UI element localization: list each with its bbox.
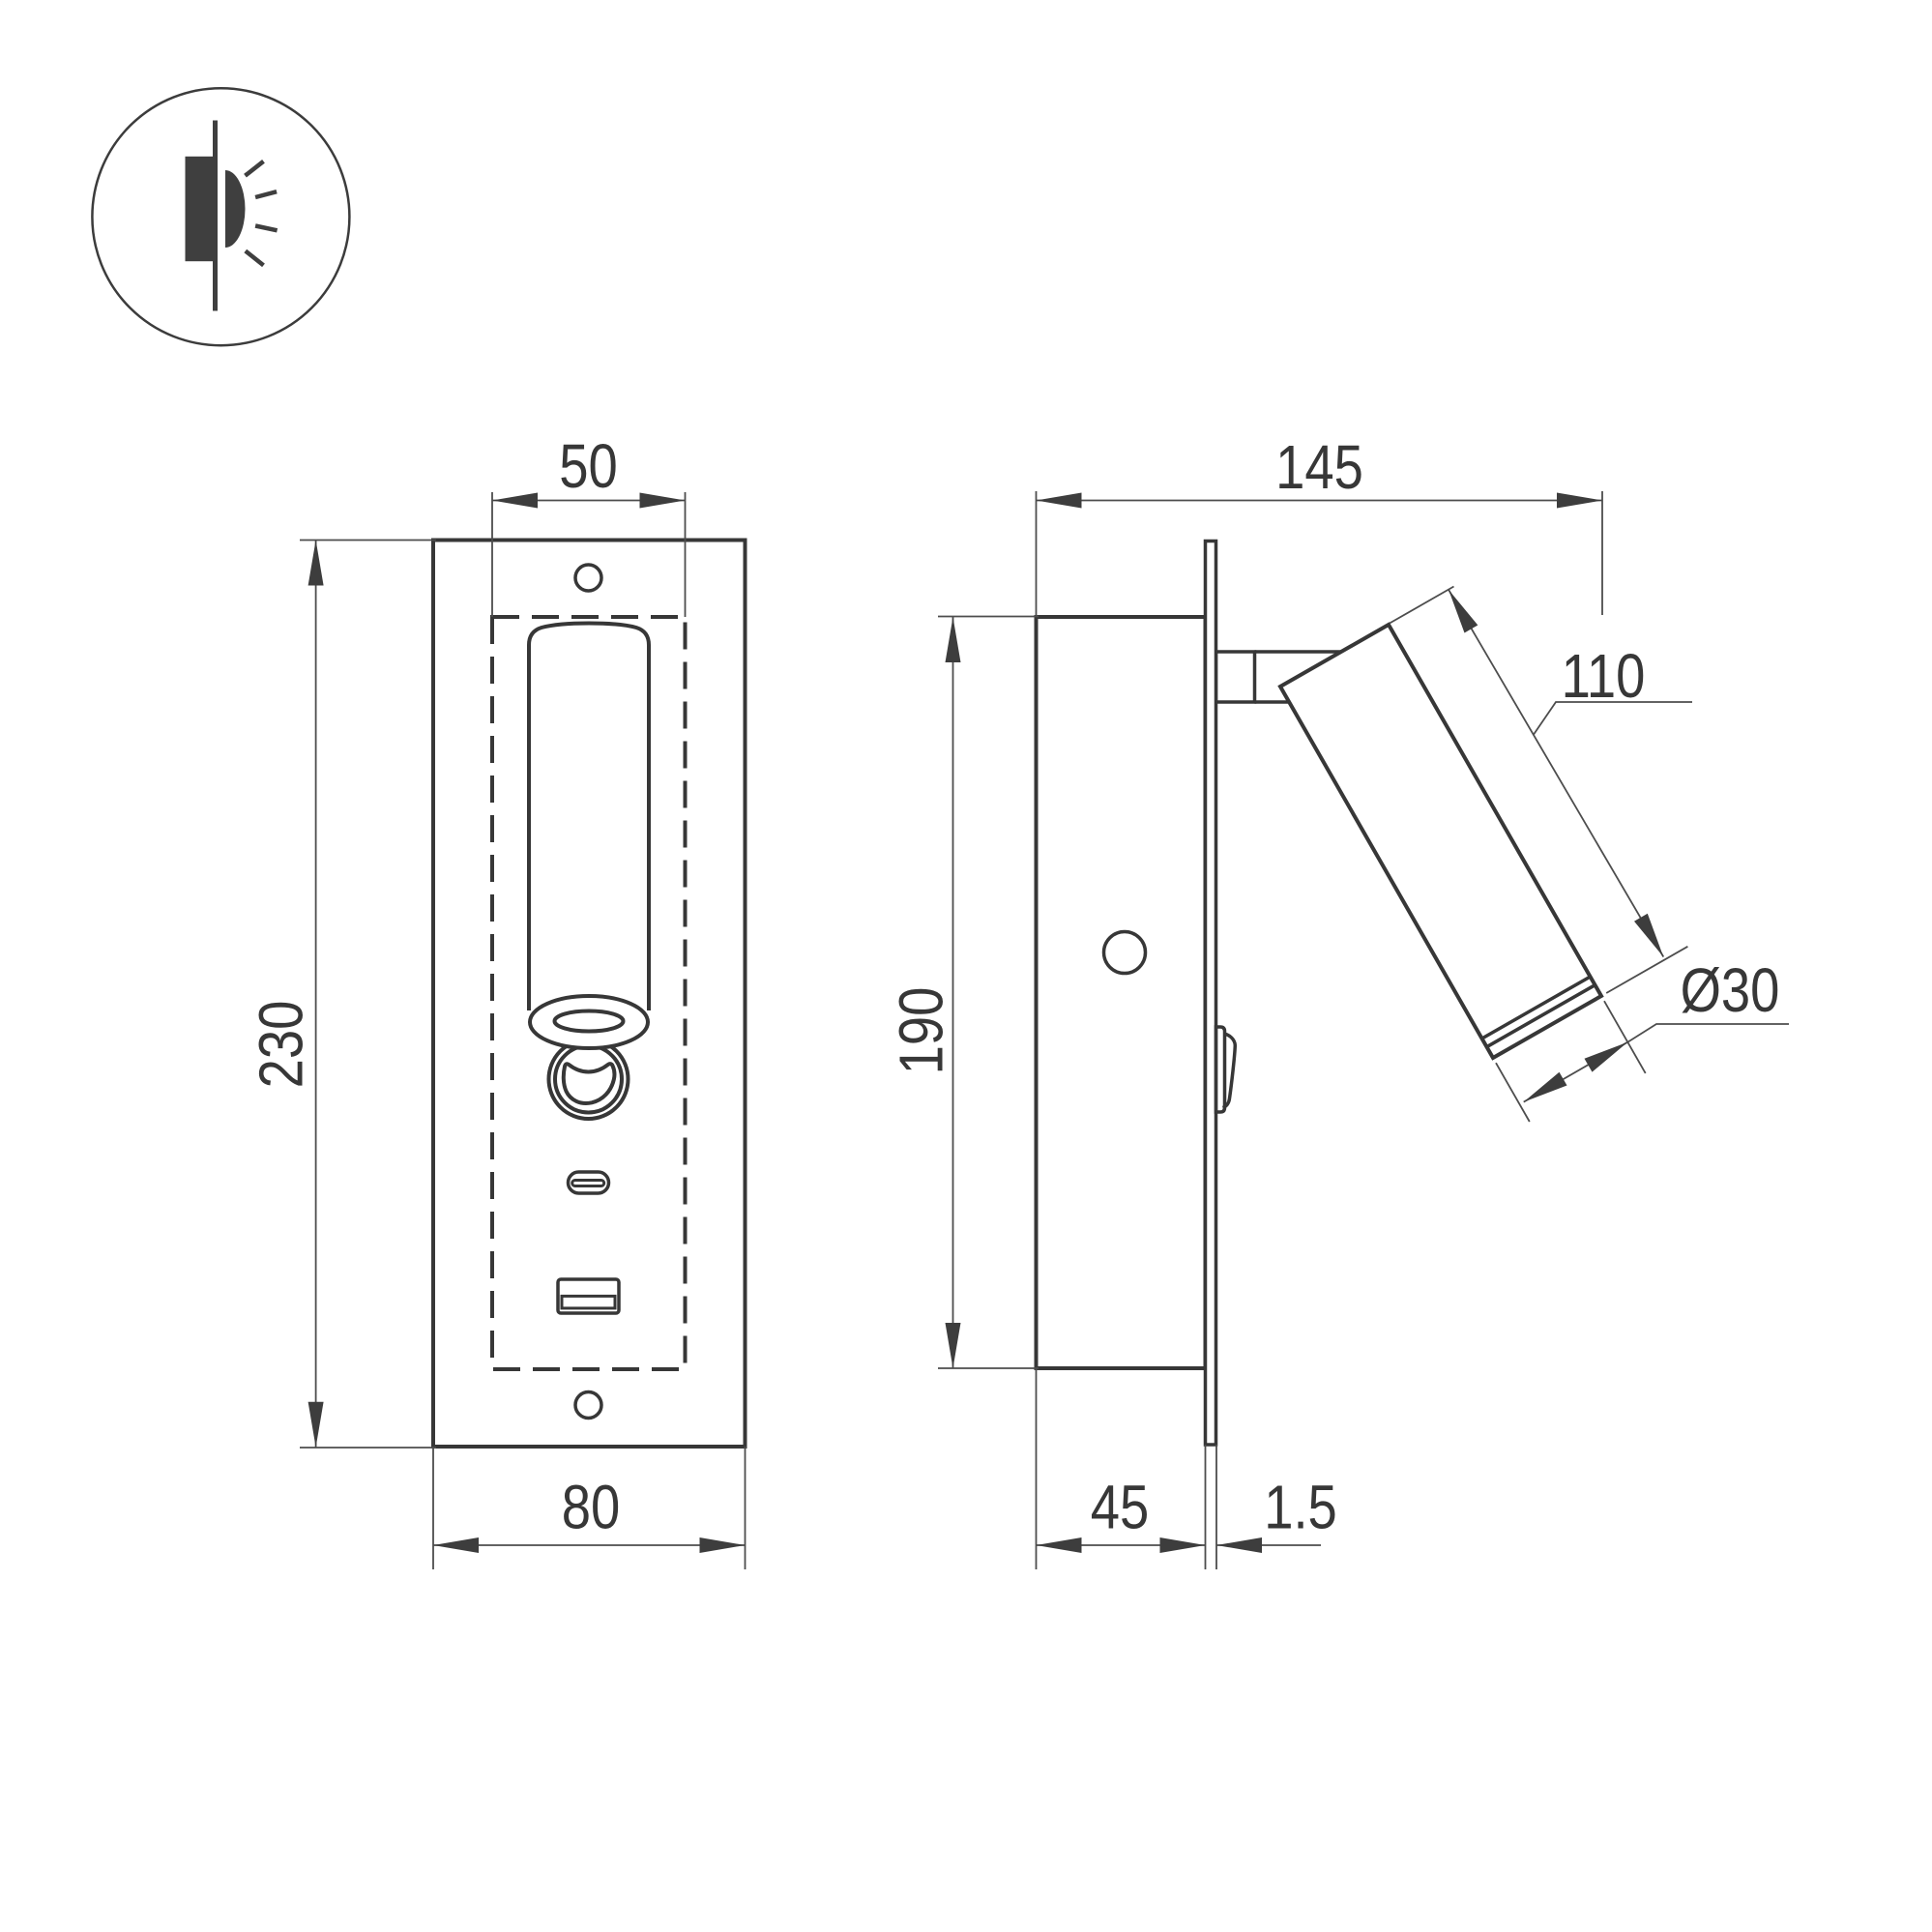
svg-text:110: 110 bbox=[1562, 641, 1646, 711]
svg-text:230: 230 bbox=[246, 1001, 315, 1089]
svg-text:190: 190 bbox=[886, 987, 955, 1075]
svg-text:45: 45 bbox=[1091, 1472, 1149, 1541]
svg-text:80: 80 bbox=[562, 1472, 620, 1541]
svg-text:50: 50 bbox=[559, 431, 617, 501]
svg-text:1.5: 1.5 bbox=[1264, 1472, 1337, 1541]
svg-text:Ø30: Ø30 bbox=[1681, 955, 1780, 1025]
svg-text:145: 145 bbox=[1275, 432, 1363, 502]
